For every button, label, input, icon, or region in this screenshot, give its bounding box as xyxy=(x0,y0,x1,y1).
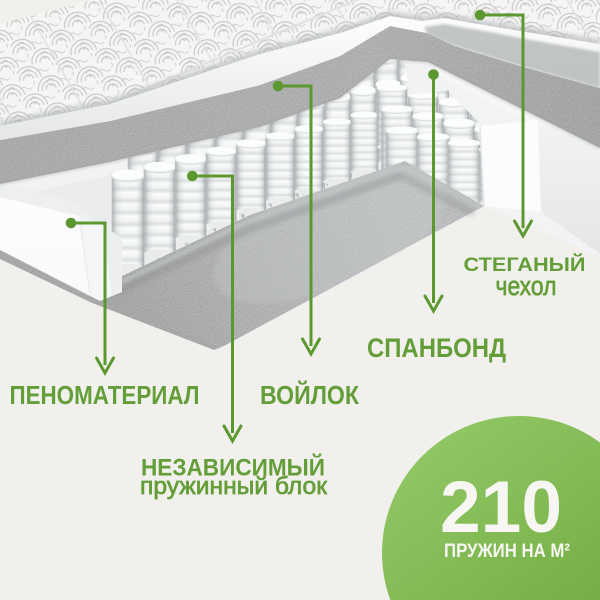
svg-text:пружинный блок: пружинный блок xyxy=(140,473,328,500)
svg-text:ВОЙЛОК: ВОЙЛОК xyxy=(260,380,359,410)
svg-text:чехол: чехол xyxy=(496,271,557,301)
svg-text:ПЕНОМАТЕРИАЛ: ПЕНОМАТЕРИАЛ xyxy=(10,380,200,410)
svg-text:210: 210 xyxy=(440,467,562,548)
svg-text:СПАНБОНД: СПАНБОНД xyxy=(367,333,506,363)
svg-text:ПРУЖИН НА М²: ПРУЖИН НА М² xyxy=(444,541,570,562)
